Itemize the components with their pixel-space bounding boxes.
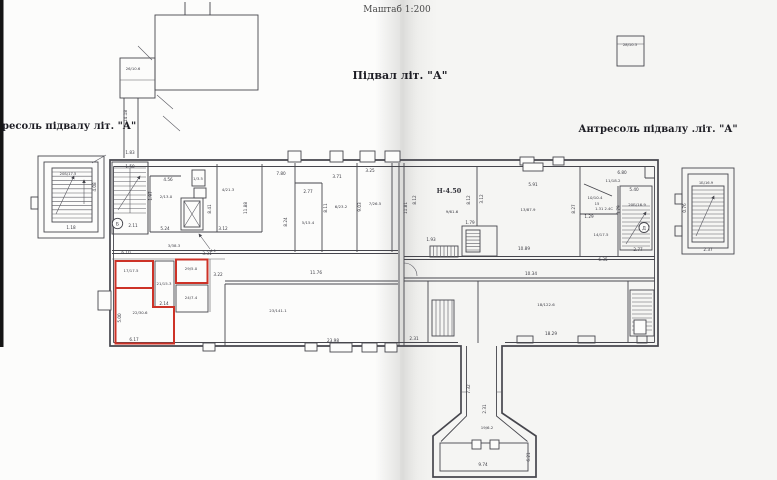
dim-label: 18/122.6: [537, 302, 555, 307]
dim-label: 2.14: [159, 301, 169, 306]
height-mark: Н-4.50: [437, 187, 462, 195]
dim-label: 6.35: [598, 257, 608, 262]
dim-label: 11.81: [403, 202, 408, 214]
dim-label: 6.10: [121, 250, 131, 255]
dim-label: 4.08: [92, 182, 97, 192]
dim-label: 7/26.5: [369, 201, 382, 206]
scan-shade-right: [400, 0, 777, 480]
dim-label: 8.11: [323, 203, 328, 213]
dim-label: 10.34: [525, 271, 537, 276]
dim-label: 5.40: [629, 187, 639, 192]
dim-label: 8.24: [283, 217, 288, 227]
dim-label: 1.50: [125, 164, 135, 169]
dim-label: 1.79: [465, 220, 475, 225]
dim-label: 19/6.2: [481, 425, 494, 430]
dim-label: 6.80: [617, 170, 627, 175]
dim-label: 5.00: [117, 313, 122, 323]
dim-label: 13/87.9: [521, 207, 536, 212]
dim-label: 15: [595, 202, 600, 206]
dim-label: 21/15.3: [157, 281, 172, 286]
dim-label: 2.77: [633, 247, 643, 252]
floor-plan-drawing: Маштаб 1:200 Підвал літ. "А" ресоль підв…: [0, 0, 777, 480]
plan-title: Підвал літ. "А": [352, 69, 447, 82]
dim-label: 0.76: [682, 203, 687, 213]
column: [472, 440, 481, 449]
dim-label: 14/17.5: [594, 232, 609, 237]
dim-label: 1Б/16.9: [699, 181, 714, 185]
dim-label: 22/30.6: [133, 310, 148, 315]
dim-label: 3.12: [479, 194, 484, 204]
left-mezzanine-title: ресоль підвалу літ. "А": [2, 121, 136, 132]
dim-label: 8.12: [412, 195, 417, 205]
right-mezzanine-title: Антресоль підвалу .літ. "А": [578, 124, 737, 135]
dim-label: 1.18: [66, 225, 76, 230]
dim-label: 8.41: [207, 204, 212, 214]
dim-label: 2.77: [303, 189, 313, 194]
dim-label: 9.03: [357, 202, 362, 212]
dim-label: 1.93: [426, 237, 436, 242]
scanned-document-page: Маштаб 1:200 Підвал літ. "А" ресоль підв…: [0, 0, 777, 480]
dim-label: 2.31: [409, 336, 419, 341]
dim-label: 3.12: [218, 226, 228, 231]
dim-label: 8.27: [571, 204, 576, 214]
dim-label: 2/13.0: [160, 194, 173, 199]
dim-label: 3/38.3: [168, 243, 181, 248]
dim-label: 2.11: [128, 223, 138, 228]
dim-label: 6.21: [526, 452, 531, 462]
dim-label: 3.25: [365, 168, 375, 173]
dim-label: 1.83: [125, 150, 135, 155]
scan-edge-bar: [0, 0, 4, 347]
dim-label: 3.22: [213, 272, 223, 277]
dim-label: 20Б/16.9: [628, 202, 646, 207]
dim-label: 7.80: [276, 171, 286, 176]
dim-label: 11.76: [310, 270, 322, 275]
dim-label: 2.31: [482, 404, 487, 414]
dim-label: 6/23.2: [335, 204, 348, 209]
dim-label: 7.32: [466, 384, 471, 394]
dim-label: 5.91: [528, 182, 538, 187]
dim-label: 26/10.6: [126, 66, 141, 71]
dim-label: 3.31: [202, 251, 212, 256]
dim-label: 9/61.6: [446, 209, 459, 214]
axis-letter: Б: [116, 222, 119, 228]
dim-label: 8.12: [466, 195, 471, 205]
dim-label: 1.97: [148, 191, 153, 201]
dim-label: 20Б/17.5: [60, 172, 77, 176]
dim-label: 3.71: [332, 174, 342, 179]
dim-label: 6.17: [129, 337, 139, 342]
dim-label: 10.89: [518, 246, 530, 251]
dim-label: 10/10.4: [588, 195, 603, 200]
column: [490, 440, 499, 449]
dim-label: 11.88: [243, 202, 248, 214]
scale-note: Маштаб 1:200: [363, 4, 431, 15]
dim-label: 1/3.5: [193, 176, 203, 181]
dim-label: 3.79: [616, 205, 621, 215]
dim-label: 24/7.4: [185, 295, 198, 300]
dim-label: 5/15.4: [302, 220, 315, 225]
dim-label: 17/17.5: [124, 268, 139, 273]
dim-label: 23/141.1: [269, 308, 287, 313]
dim-label: 4/21.3: [222, 187, 235, 192]
dim-label: 29/5.0: [185, 266, 198, 271]
dim-label: 9.74: [478, 462, 488, 467]
dim-label: 18.29: [545, 331, 557, 336]
dim-label: 5.24: [160, 226, 170, 231]
dim-label: 1.31 2.4С: [595, 207, 613, 211]
dim-label: 28/10.3: [623, 43, 638, 47]
dim-label: 4.56: [163, 177, 173, 182]
dim-label: 11/18.2: [606, 178, 621, 183]
dim-label: 14.18: [123, 110, 128, 122]
dim-label: 2.37: [703, 247, 713, 252]
dim-label: 23.98: [327, 338, 339, 343]
axis-letter: Д: [642, 226, 646, 232]
dim-label: 1.29: [584, 214, 594, 219]
